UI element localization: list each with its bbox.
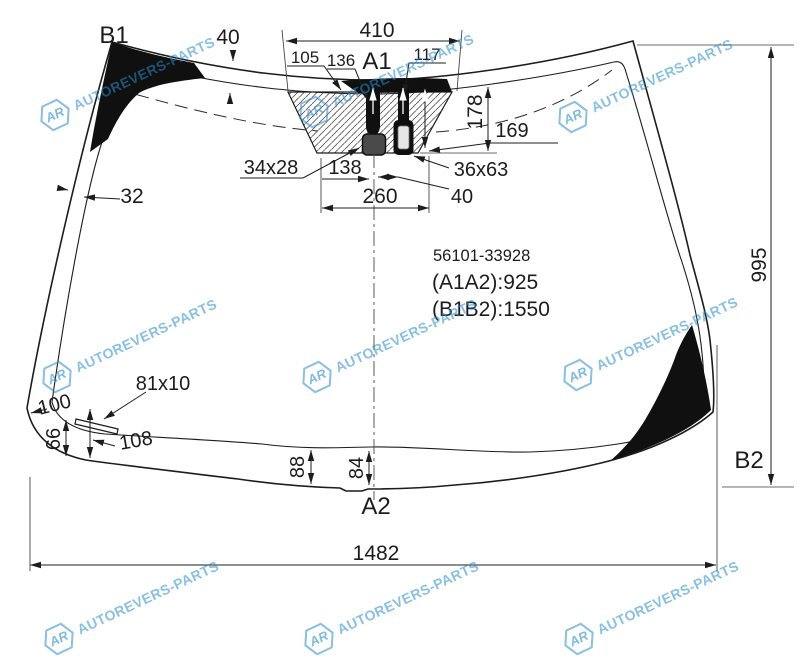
ar-logo-icon: AR <box>36 616 81 661</box>
ceramic-band-top-center <box>341 78 452 93</box>
rain-sensor-window <box>398 126 409 149</box>
dim-label-81x10: 81x10 <box>136 373 191 395</box>
dim-label-66: 66 <box>43 428 65 450</box>
dim-label-260: 260 <box>362 185 397 208</box>
dim-label-32: 32 <box>120 185 143 208</box>
ar-logo-icon: AR <box>556 616 601 661</box>
dim-label-1482: 1482 <box>353 542 400 565</box>
windshield-technical-drawing: B1 A1 A2 B2 410 40 105 136 117 178 169 3… <box>0 0 800 600</box>
dim-label-117: 117 <box>413 45 440 64</box>
dim-label-34x28: 34x28 <box>244 157 299 179</box>
dim-label-410: 410 <box>359 19 394 42</box>
diagonal-b1b2: (B1B2):1550 <box>432 298 550 321</box>
dim-label-169: 169 <box>495 120 528 142</box>
ar-logo-icon: AR <box>296 616 341 661</box>
dim-label-138: 138 <box>328 157 361 179</box>
dim-label-105: 105 <box>291 48 319 67</box>
dim-label-84: 84 <box>346 457 368 479</box>
dim-label-995: 995 <box>748 247 771 282</box>
svg-text:AR: AR <box>566 628 591 650</box>
dim-label-36x63: 36x63 <box>454 159 509 181</box>
windshield-diagram-page: { "brand": { "logo_abbr": "AR", "name": … <box>0 0 800 600</box>
mirror-bracket-foot <box>363 134 386 155</box>
dim-label-40-gap: 40 <box>451 186 473 208</box>
svg-text:AR: AR <box>306 628 331 650</box>
dim-label-136: 136 <box>327 51 355 70</box>
diagonal-a1a2: (A1A2):925 <box>432 271 538 294</box>
dim-label-88: 88 <box>287 456 309 478</box>
point-label-a2: A2 <box>361 493 390 520</box>
dim-label-40-top: 40 <box>216 26 239 49</box>
point-label-b2: B2 <box>734 447 763 474</box>
point-label-b1: B1 <box>99 22 128 49</box>
point-label-a1: A1 <box>362 48 391 75</box>
svg-text:AR: AR <box>46 628 71 650</box>
dim-label-178: 178 <box>464 94 487 129</box>
part-number: 56101-33928 <box>433 247 530 265</box>
